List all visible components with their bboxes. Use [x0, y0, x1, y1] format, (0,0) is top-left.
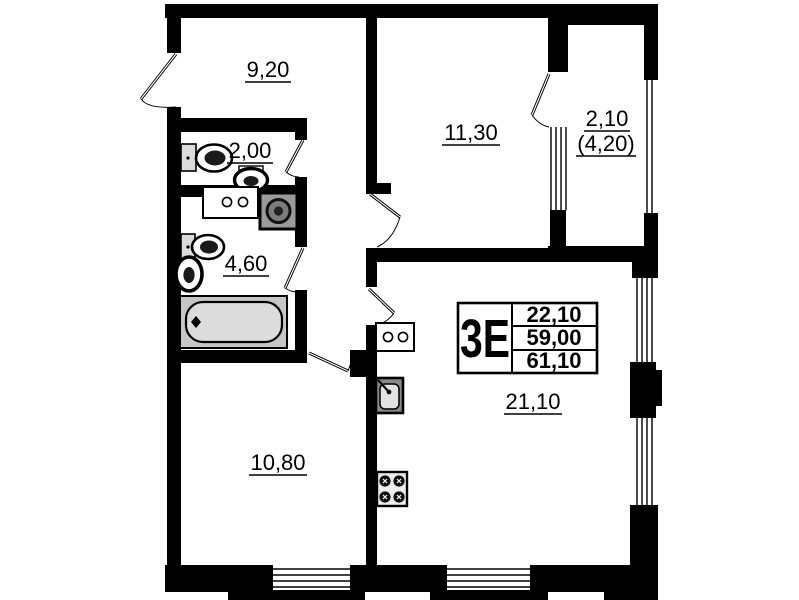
wall-hall-right-top [366, 18, 377, 183]
wall-left-main [167, 107, 181, 592]
entrance-door [141, 54, 176, 107]
toilet-icon [181, 144, 232, 172]
entry-hall-area-label: 9,20 [247, 57, 290, 82]
window-room1080 [273, 569, 350, 587]
wall-balcony-divider-bottom [550, 210, 566, 250]
wall-kitchen-right-pier-bump [654, 370, 662, 406]
facade-strip-2 [430, 590, 548, 600]
wall-hall-left-a [295, 118, 307, 140]
room1080-door [309, 353, 352, 371]
floor-plan: 9,20 2,00 4,60 11,30 2,10 (4,20) 10,80 2… [0, 0, 799, 600]
window-bedroom-balcony [551, 127, 566, 210]
kitchen-sink-icon [376, 378, 403, 413]
wall-top-main [165, 4, 568, 18]
wall-bath-bottom [167, 350, 307, 363]
wall-entry-bottom [167, 118, 307, 132]
balcony-glazing-right [647, 80, 652, 213]
wall-right-pier-top [644, 4, 658, 80]
balcony-area-label: 2,10 [586, 106, 629, 131]
bathroom-door [285, 248, 303, 292]
stove-icon [377, 472, 407, 506]
unit-living-area-value: 22,10 [526, 302, 581, 327]
bedroom-area-label: 11,30 [444, 120, 497, 145]
wall-kitchen-door-jamb [366, 262, 377, 287]
kitchen-fixtures [376, 323, 414, 506]
wc-area-label: 2,00 [229, 138, 272, 163]
wc-door [286, 140, 303, 177]
facade-strip-3 [604, 586, 658, 600]
wall-kitchen-right-top [632, 262, 658, 278]
bathtub-icon [180, 296, 287, 348]
wall-bottom-left [165, 565, 273, 592]
wall-kitchen-divider [366, 248, 632, 262]
window-kitchen-right-lower [637, 418, 652, 505]
kitchen-living-area-label: 21,10 [505, 389, 560, 414]
unit-info-table: 3Е 22,10 59,00 61,10 [458, 302, 597, 373]
floor-plan-svg: 9,20 2,00 4,60 11,30 2,10 (4,20) 10,80 2… [0, 0, 799, 600]
wall-bottom-mid [350, 565, 447, 592]
wall-left-upper [167, 4, 181, 53]
facade-strip-1 [228, 590, 365, 600]
window-kitchen-bottom [447, 569, 530, 587]
unit-total-area-value: 61,10 [526, 348, 581, 373]
round-sink-icon [176, 257, 202, 291]
bedroom2-area-label: 10,80 [250, 450, 305, 475]
unit-type-label: 3Е [460, 309, 510, 369]
wall-balcony-pier-left [548, 4, 568, 72]
unit-area-value: 59,00 [526, 325, 581, 350]
vanity-cabinet-icon [203, 187, 258, 218]
kitchen-cabinet-icon [376, 323, 414, 351]
bedroom-door [370, 194, 400, 247]
balcony-door [532, 74, 549, 127]
washing-machine-icon [260, 193, 297, 229]
window-kitchen-right-upper [637, 278, 652, 362]
wall-kitchen-right-pier [630, 362, 656, 418]
wall-kitchen-right-bottom [630, 505, 658, 567]
kitchen-door [369, 289, 394, 325]
bathroom-area-label: 4,60 [225, 251, 268, 276]
wall-kitchen-left [366, 325, 377, 565]
balcony-area-coeff-label: (4,20) [577, 131, 634, 156]
wall-hall-right-foot [366, 183, 391, 194]
